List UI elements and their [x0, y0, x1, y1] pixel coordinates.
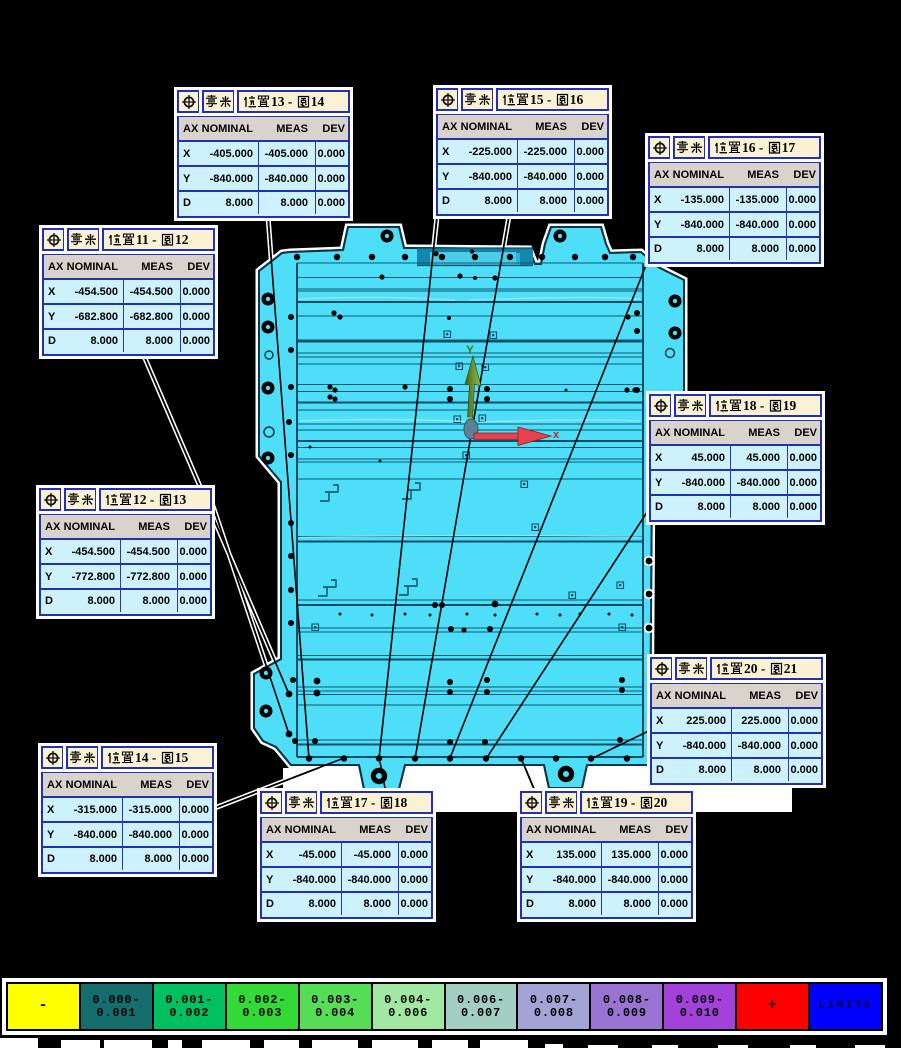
svg-text:Y: Y [466, 343, 474, 357]
svg-text:x: x [553, 429, 560, 441]
